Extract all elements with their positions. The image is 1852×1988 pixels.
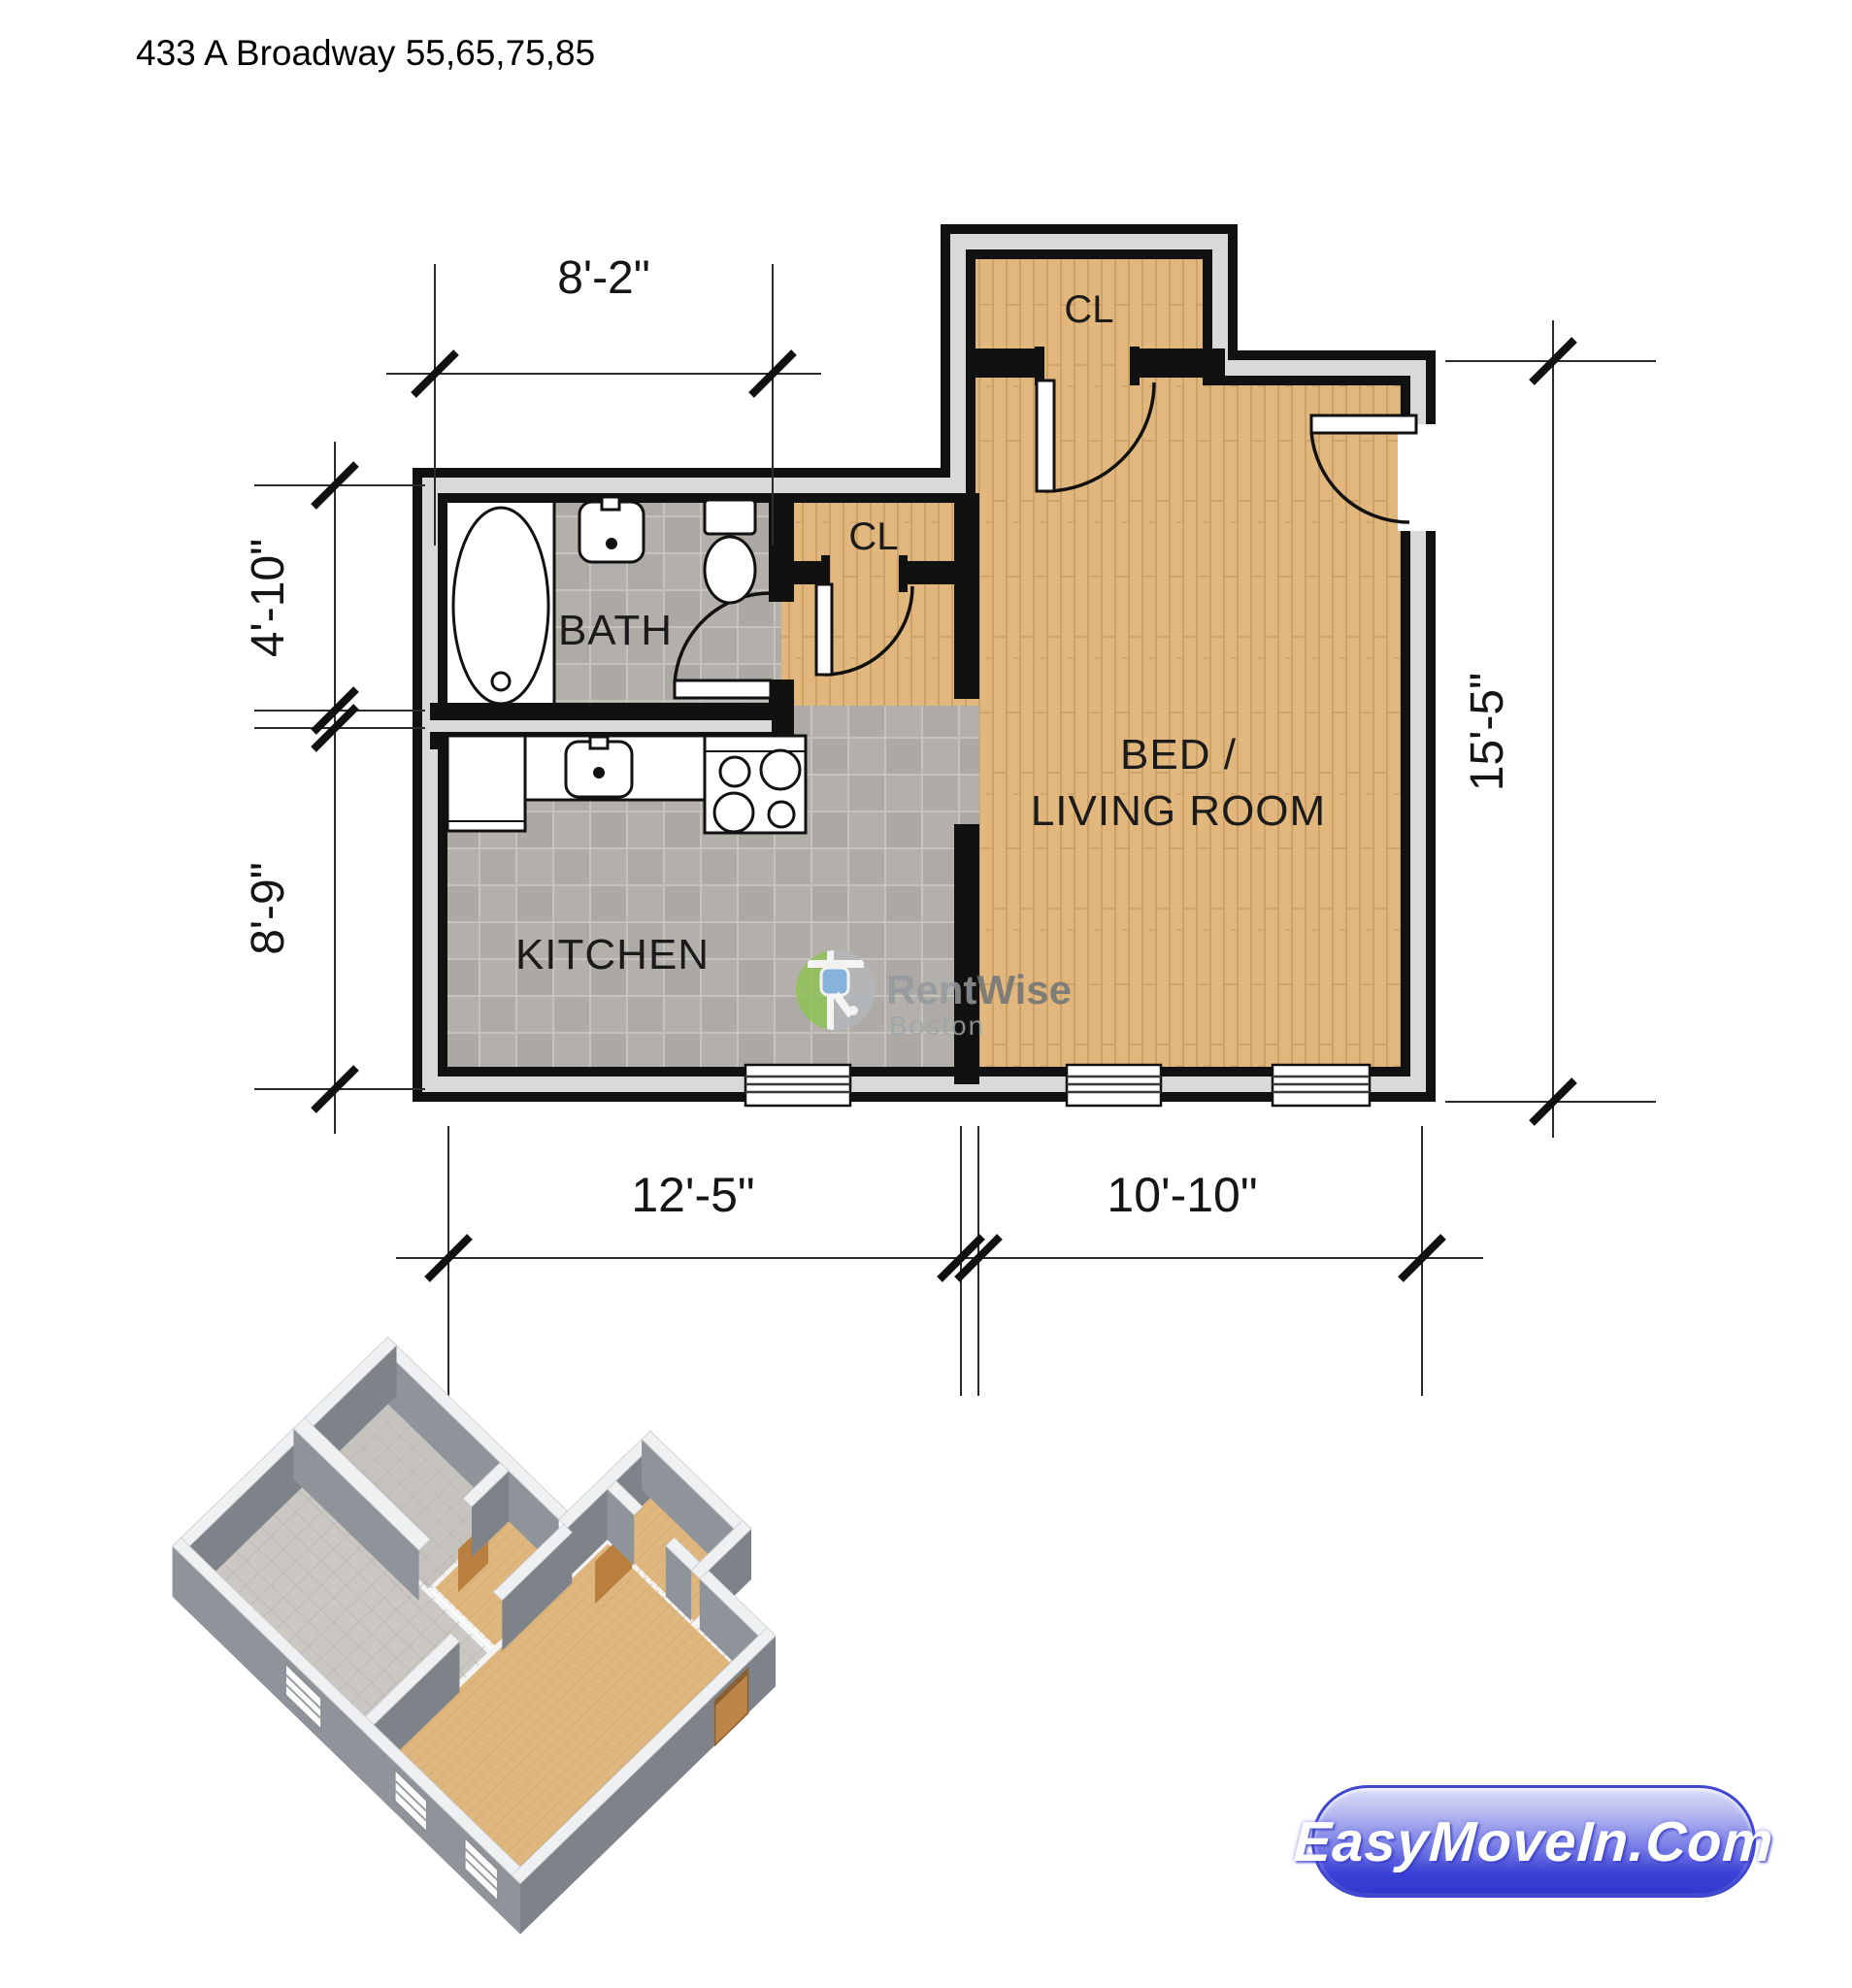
bath-label: BATH [558,607,673,654]
window [1273,1065,1370,1106]
kitchen-label: KITCHEN [515,931,710,978]
burner [769,802,794,827]
entry-opening [1398,424,1440,531]
closet-mid-door-leaf [816,584,832,675]
bed-living-label-line2: LIVING ROOM [1031,787,1326,835]
window [1067,1065,1161,1106]
bath-sink-faucet [602,497,619,510]
tub-drain [492,673,510,690]
floor-plan-3d-view [173,1337,777,1934]
floor-plan-sheet: 433 A Broadway 55,65,75,85 [0,0,1852,1988]
bath-door-leaf [675,680,771,698]
burner [761,750,800,789]
dim-left-upper-text: 4'-10" [243,539,294,657]
watermark-city: Boston [889,1011,985,1041]
toilet-tank [705,500,755,534]
bed-living-label-line1: BED / [1120,731,1237,779]
dim-bottom-left-text: 12'-5" [631,1168,754,1222]
refrigerator-icon [447,736,525,831]
dim-top-text: 8'-2" [557,252,650,304]
entry-door-leaf [1311,415,1416,433]
burner [714,793,753,832]
dim-left-lower-text: 8'-9" [243,862,294,955]
closet-top-door-leaf [1037,381,1054,491]
svg-text:RentWise: RentWise [886,967,1072,1012]
dim-right-text: 15'-5" [1462,673,1513,791]
closet-top-label: CL [1064,288,1113,331]
watermark-brand-first: Rent [886,967,976,1012]
easymovein-logo-text: EasyMoveIn.Com [1292,1809,1775,1874]
closet-mid-label: CL [848,515,898,558]
watermark-brand-second: Wise [976,967,1072,1012]
dim-bottom-right-text: 10'-10" [1107,1168,1257,1222]
window [745,1065,850,1106]
burner [720,757,749,786]
floor-plan-drawing: CL CL BATH KITCHEN BED / LIVING ROOM [0,0,1852,1988]
dimension-bottom [396,1126,1483,1396]
easymovein-logo-badge: EasyMoveIn.Com [1311,1785,1756,1898]
toilet-icon [705,537,755,603]
